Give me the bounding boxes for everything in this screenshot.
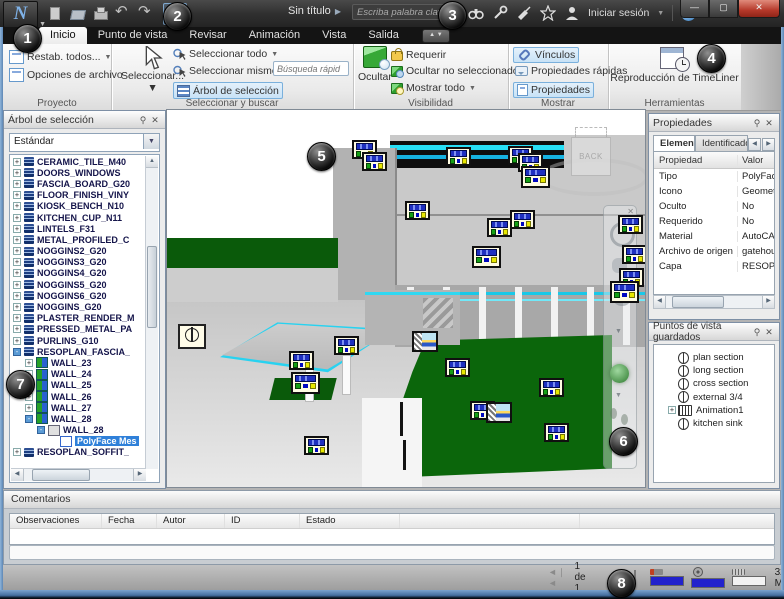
tree-item[interactable]: +KITCHEN_CUP_N11 — [11, 212, 146, 223]
layer-icon — [24, 303, 34, 312]
panel-label: Mostrar — [508, 98, 608, 109]
comments-column-fecha[interactable]: Fecha — [102, 514, 157, 528]
white-monument — [362, 398, 422, 487]
tree-item[interactable]: +LINTELS_F31 — [11, 223, 146, 234]
tab-revisar[interactable]: Revisar — [178, 27, 237, 44]
tree-item-label: RESOPLAN_FASCIA_ — [37, 347, 130, 357]
panel-title: Propiedades — [653, 117, 751, 129]
chain-link-icon — [518, 48, 531, 61]
file-options-button[interactable]: Opciones de archivo — [9, 68, 123, 82]
title-arrow-icon: ▶ — [335, 7, 341, 16]
scroll-thumb[interactable] — [147, 246, 157, 328]
tree-item-label: WALL_28 — [51, 414, 92, 424]
title-bar: N ▼ Sin título▶ — [0, 0, 784, 28]
viewpoint-label: long section — [693, 365, 744, 376]
hide-cube-icon — [363, 46, 387, 68]
scroll-up-icon[interactable]: ▲ — [146, 156, 158, 168]
tab-animación[interactable]: Animación — [238, 27, 311, 44]
callout-badge-5: 5 — [307, 142, 336, 171]
chevron-down-icon[interactable]: ▼ — [143, 134, 159, 149]
callout-badge-4: 4 — [697, 44, 726, 73]
hyperlink-icon[interactable] — [446, 147, 471, 166]
hyperlink-icon[interactable] — [521, 166, 550, 188]
tree-item-label: FASCIA_BOARD_G20 — [37, 179, 130, 189]
scroll-thumb[interactable] — [672, 296, 724, 308]
comments-empty-strip — [9, 545, 775, 560]
saved-viewpoints-panel: Puntos de vista guardados ⚲ ✕ +plan sect… — [648, 322, 780, 489]
web-icon — [732, 569, 745, 575]
tree-expander-icon[interactable]: + — [13, 236, 21, 244]
quick-find-input[interactable] — [273, 61, 349, 76]
layer-icon — [24, 235, 34, 244]
hyperlink-icon[interactable] — [304, 436, 329, 455]
hyperlink-icon[interactable] — [487, 218, 512, 237]
chevron-down-icon[interactable]: ▼ — [615, 392, 622, 399]
panel-proyecto: Restab. todos...▼ Opciones de archivo Pr… — [3, 44, 112, 110]
layer-icon — [24, 168, 34, 177]
layer-icon — [24, 213, 34, 222]
viewpoint-marker-icon[interactable] — [178, 324, 206, 349]
tree-item[interactable]: +FLOOR_FINISH_VINY — [11, 190, 146, 201]
tree-item[interactable]: +METAL_PROFILED_C — [11, 234, 146, 245]
tree-item-label: WALL_25 — [51, 380, 92, 390]
comments-column-autor[interactable]: Autor — [157, 514, 225, 528]
pin-icon[interactable]: ⚲ — [751, 117, 763, 129]
tree-item[interactable]: +RESOPLAN_SOFFIT_ — [11, 447, 146, 458]
pencil-icon — [650, 569, 663, 575]
tree-expander-icon[interactable]: - — [13, 348, 21, 356]
status-bar: ◄❘ ◄ 1 de 1 324 MB — [3, 565, 781, 590]
properties-page-icon — [517, 84, 528, 96]
tree-item[interactable]: +FASCIA_BOARD_G20 — [11, 178, 146, 189]
tree-expander-icon[interactable]: + — [25, 404, 33, 412]
tree-container: +CERAMIC_TILE_M40+DOORS_WINDOWS+FASCIA_B… — [9, 154, 160, 483]
callout-badge-2: 2 — [163, 2, 192, 31]
comments-column-id[interactable]: ID — [225, 514, 300, 528]
saved-viewpoints-header[interactable]: Puntos de vista guardados ⚲ ✕ — [649, 323, 779, 341]
layer-icon — [24, 325, 34, 334]
viewcube-lid — [575, 127, 607, 137]
layer-icon — [24, 448, 34, 457]
tree-item-label: PURLINS_G10 — [37, 336, 99, 346]
hide-unselected-icon — [391, 66, 403, 77]
ribbon-overflow-area — [741, 44, 781, 110]
scroll-right-icon[interactable]: ▶ — [133, 469, 146, 481]
viewport-3d[interactable]: BACK ✕ ▼ ▼ — [167, 110, 645, 487]
tree-expander-icon[interactable]: + — [13, 247, 21, 255]
redo-icon[interactable] — [138, 5, 155, 21]
tree-item-label: KITCHEN_CUP_N11 — [37, 213, 122, 223]
new-file-icon[interactable] — [46, 5, 63, 21]
show-all-button[interactable]: Mostrar todo▼ — [391, 82, 476, 94]
tree-expander-icon[interactable]: + — [13, 337, 21, 345]
terrace-grey — [167, 268, 338, 302]
hyperlink-icon[interactable] — [510, 210, 535, 229]
tree-expander-icon[interactable]: + — [13, 325, 21, 333]
undo-icon[interactable] — [115, 5, 132, 21]
close-button[interactable]: ✕ — [738, 0, 780, 18]
lock-icon — [391, 51, 403, 61]
property-row[interactable]: RequeridoNo — [654, 214, 774, 229]
tree-item-label: NOGGINS_G20 — [37, 302, 102, 312]
canopy-column — [342, 355, 351, 395]
tree-item[interactable]: +NOGGINS4_G20 — [11, 268, 146, 279]
tree-item[interactable]: +NOGGINS6_G20 — [11, 290, 146, 301]
tree-item-label: PolyFace Mes — [75, 436, 139, 446]
disk-progress-meter — [691, 567, 725, 588]
tree-expander-icon[interactable]: + — [13, 202, 21, 210]
layer-icon — [24, 179, 34, 188]
tree-mode-dropdown[interactable]: Estándar ▼ — [9, 133, 160, 152]
layer-icon — [24, 347, 34, 356]
tree-item[interactable]: +CERAMIC_TILE_M40 — [11, 156, 146, 167]
tree-item[interactable]: -WALL_28 — [11, 425, 146, 436]
tree-item-label: WALL_23 — [51, 358, 92, 368]
property-row[interactable]: CapaRESOPLA — [654, 259, 774, 274]
application-window: N ▼ Sin título▶ — [0, 0, 784, 599]
layer-icon — [24, 247, 34, 256]
layer-icon — [24, 314, 34, 323]
tree-item-label: WALL_28 — [63, 425, 104, 435]
divider — [672, 5, 673, 21]
quick-access-toolbar — [46, 4, 155, 22]
tree-item-label: PRESSED_METAL_PA — [37, 324, 132, 334]
search-binoculars-icon[interactable] — [468, 5, 484, 21]
selection-tree-list: +CERAMIC_TILE_M40+DOORS_WINDOWS+FASCIA_B… — [11, 156, 146, 469]
tree-expander-icon[interactable]: + — [668, 406, 676, 414]
viewpoint-icon — [678, 352, 689, 364]
viewpoint-item[interactable]: +cross section — [668, 377, 774, 390]
ribbon: Restab. todos...▼ Opciones de archivo Pr… — [3, 44, 781, 111]
comments-header[interactable]: Comentarios — [4, 491, 780, 509]
viewpoint-label: plan section — [693, 352, 744, 363]
wall-icon — [36, 357, 48, 368]
tree-item-label: FLOOR_FINISH_VINY — [37, 190, 129, 200]
viewpoint-icon — [678, 418, 689, 430]
app-logo: N — [14, 3, 28, 24]
hyperlink-icon[interactable] — [445, 358, 470, 377]
tree-expander-icon[interactable]: + — [13, 191, 21, 199]
tree-expander-icon[interactable]: + — [13, 269, 21, 277]
progress-bar — [691, 578, 725, 588]
window-controls: — ▢ ✕ — [680, 0, 780, 18]
tree-expander-icon[interactable]: + — [13, 292, 21, 300]
wall-icon — [36, 380, 48, 391]
ribbon-minimize-button[interactable]: ▲ ▼ — [422, 29, 450, 43]
walk-footprints-icon[interactable] — [610, 408, 617, 419]
layer-icon — [24, 291, 34, 300]
callout-badge-1: 1 — [13, 24, 42, 53]
hyperlink-icon[interactable] — [405, 201, 430, 220]
window-border — [0, 27, 3, 590]
properties-button[interactable]: Propiedades — [513, 82, 594, 98]
tree-expander-icon[interactable]: + — [13, 303, 21, 311]
tree-expander-icon[interactable]: + — [13, 214, 21, 222]
layer-icon — [24, 269, 34, 278]
tree-item-label: WALL_26 — [51, 392, 92, 402]
comments-table: ObservacionesFechaAutorIDEstado — [9, 513, 775, 545]
group-icon — [48, 425, 60, 436]
tree-item[interactable]: +NOGGINS3_G20 — [11, 257, 146, 268]
progress-bar — [732, 576, 766, 586]
layer-icon — [24, 157, 34, 166]
tree-item-label: RESOPLAN_SOFFIT_ — [37, 447, 129, 457]
panel-mostrar: Vínculos Propiedades rápidas Propiedades… — [508, 44, 609, 110]
viewpoint-icon — [678, 378, 689, 390]
callout-badge-7: 7 — [6, 370, 35, 399]
hyperlink-icon[interactable] — [472, 246, 501, 268]
scroll-right-icon[interactable]: ▶ — [762, 296, 774, 308]
comments-column-estado[interactable]: Estado — [300, 514, 400, 528]
viewpoint-icon — [678, 365, 689, 377]
selection-tree-button[interactable]: Árbol de selección — [173, 82, 283, 99]
tree-item[interactable]: +PURLINS_G10 — [11, 335, 146, 346]
print-icon[interactable] — [92, 5, 109, 21]
hyperlink-icon[interactable] — [362, 152, 387, 171]
callout-badge-3: 3 — [438, 1, 467, 30]
wall-icon — [36, 391, 48, 402]
tree-item[interactable]: +PolyFace Mes — [11, 436, 146, 447]
viewpoint-icon — [678, 391, 689, 403]
tree-item-label: NOGGINS6_G20 — [37, 291, 107, 301]
orbit-icon[interactable] — [610, 364, 629, 383]
tree-item[interactable]: +NOGGINS2_G20 — [11, 246, 146, 257]
viewpoint-item[interactable]: +Animation1 — [668, 404, 774, 417]
layer-icon — [24, 280, 34, 289]
panel-label: Herramientas — [608, 98, 741, 109]
viewpoint-item[interactable]: +long section — [668, 364, 774, 377]
tab-scroll-left-icon[interactable]: ◀ — [748, 138, 761, 151]
geom-icon — [60, 436, 72, 447]
favorites-star-icon[interactable] — [540, 5, 556, 21]
tree-item-label: NOGGINS5_G20 — [37, 280, 107, 290]
hide-big-button[interactable]: Ocultar — [358, 46, 392, 83]
hyperlink-icon[interactable] — [289, 351, 314, 370]
tree-expander-icon[interactable]: + — [13, 180, 21, 188]
disk-icon — [693, 567, 703, 577]
subscription-wrench-icon[interactable] — [492, 5, 508, 21]
viewcube[interactable]: BACK — [571, 137, 611, 176]
wall-icon — [36, 369, 48, 380]
panel-label: Seleccionar y buscar — [111, 98, 353, 109]
scroll-left-icon[interactable]: ◀ — [11, 469, 24, 481]
pencil-progress-meter — [650, 569, 684, 586]
tree-item-label: DOORS_WINDOWS — [37, 168, 121, 178]
speech-bubble-icon — [515, 66, 528, 76]
tree-item-label: METAL_PROFILED_C — [37, 235, 129, 245]
tree-item[interactable]: +DOORS_WINDOWS — [11, 167, 146, 178]
tree-expander-icon[interactable]: - — [37, 426, 45, 434]
communication-center-icon[interactable] — [516, 5, 532, 21]
properties-table-header: Propiedad Valor — [654, 152, 774, 169]
hide-unselected-button[interactable]: Ocultar no seleccionados — [391, 65, 524, 77]
sign-in-chevron-icon[interactable]: ▼ — [657, 10, 664, 17]
tree-item[interactable]: -WALL_28 — [11, 413, 146, 424]
viewpoint-item[interactable]: +kitchen sink — [668, 417, 774, 430]
tree-expander-icon[interactable]: + — [13, 225, 21, 233]
maximize-button[interactable]: ▢ — [709, 0, 738, 18]
properties-tabs: Elemento Identificador d ◀ ▶ — [653, 135, 775, 152]
tab-salida[interactable]: Salida — [357, 27, 410, 44]
tree-item[interactable]: +NOGGINS5_G20 — [11, 279, 146, 290]
select-same-button[interactable]: Seleccionar mismo▼ — [173, 65, 289, 77]
window-border — [0, 590, 784, 599]
viewpoint-item[interactable]: +plan section — [668, 351, 774, 364]
tree-item[interactable]: +WALL_27 — [11, 402, 146, 413]
selection-tree-header[interactable]: Árbol de selección ⚲ ✕ — [4, 111, 165, 129]
select-same-icon — [173, 65, 186, 77]
comments-column-observaciones[interactable]: Observaciones — [10, 514, 102, 528]
wall-icon — [36, 402, 48, 413]
document-title: Sin título▶ — [288, 5, 341, 17]
tab-punto-de-vista[interactable]: Punto de vista — [87, 27, 179, 44]
tree-horizontal-scrollbar[interactable]: ◀ ▶ — [11, 468, 146, 481]
callout-badge-6: 6 — [609, 427, 638, 456]
pin-icon[interactable]: ⚲ — [137, 114, 149, 126]
property-row[interactable]: MaterialAutoCAD C — [654, 229, 774, 244]
tree-item-label: NOGGINS4_G20 — [37, 268, 107, 278]
comments-panel: Comentarios ObservacionesFechaAutorIDEst… — [3, 490, 781, 565]
wall-icon — [36, 413, 48, 424]
show-all-icon — [391, 83, 403, 94]
selection-tree-icon — [177, 85, 190, 97]
minimize-button[interactable]: — — [680, 0, 709, 18]
green-strip-left — [167, 238, 338, 268]
tree-item-label: LINTELS_F31 — [37, 224, 95, 234]
hyperlink-icon[interactable] — [291, 372, 320, 394]
file-options-icon — [9, 68, 24, 82]
web-progress-meter — [732, 569, 766, 586]
links-button[interactable]: Vínculos — [513, 47, 579, 63]
properties-header[interactable]: Propiedades ⚲ ✕ — [649, 114, 779, 132]
pin-icon[interactable]: ⚲ — [751, 326, 763, 338]
layer-icon — [24, 191, 34, 200]
hyperlink-icon[interactable] — [539, 378, 564, 397]
tree-item[interactable]: +PRESSED_METAL_PA — [11, 324, 146, 335]
tab-elemento[interactable]: Elemento — [653, 135, 695, 151]
tree-item-label: NOGGINS2_G20 — [37, 246, 107, 256]
viewpoint-label: cross section — [693, 378, 748, 389]
tree-item[interactable]: -RESOPLAN_FASCIA_ — [11, 346, 146, 357]
cursor-icon — [143, 46, 163, 70]
select-all-icon — [173, 48, 186, 60]
property-row[interactable]: Archivo de origengatehouse — [654, 244, 774, 259]
tree-expander-icon[interactable]: + — [13, 281, 21, 289]
scroll-left-icon[interactable]: ◀ — [654, 296, 666, 308]
infocenter-toolbar: Iniciar sesión ▼ ? ▼ — [468, 3, 711, 23]
tree-item-label: NOGGINS3_G20 — [37, 257, 107, 267]
tree-expander-icon[interactable]: + — [13, 258, 21, 266]
tree-item-label: KIOSK_BENCH_N10 — [37, 201, 124, 211]
sheet-prev-icons[interactable]: ◄❘ ◄ — [548, 567, 566, 588]
require-button[interactable]: Requerir — [391, 48, 446, 61]
panel-label: Proyecto — [3, 98, 111, 109]
property-row[interactable]: TipoPolyFace M — [654, 169, 774, 184]
ribbon-tabs: ▲ ▼ InicioPunto de vistaRevisarAnimación… — [3, 27, 781, 44]
panel-title: Árbol de selección — [8, 114, 137, 126]
chevron-down-icon[interactable]: ▼ — [615, 328, 622, 335]
property-row[interactable]: OcultoNo — [654, 199, 774, 214]
close-icon[interactable]: ✕ — [149, 114, 161, 126]
viewpoint-label: kitchen sink — [693, 418, 743, 429]
callout-badge-8: 8 — [607, 569, 636, 598]
tab-inicio[interactable]: Inicio — [39, 27, 87, 44]
hyperlink-icon[interactable] — [544, 423, 569, 442]
comments-column-extra[interactable] — [400, 514, 580, 528]
tree-expander-icon[interactable]: + — [13, 314, 21, 322]
viewpoint-item[interactable]: +external 3/4 — [668, 391, 774, 404]
tree-item-label: PLASTER_RENDER_M — [37, 313, 135, 323]
tree-vertical-scrollbar[interactable]: ▲ — [145, 156, 158, 469]
tab-identificador[interactable]: Identificador d — [695, 135, 748, 151]
viewpoint-label: Animation1 — [696, 405, 744, 416]
tree-expander-icon[interactable]: + — [25, 359, 33, 367]
tree-expander-icon[interactable]: + — [13, 169, 21, 177]
tree-item-label: WALL_27 — [51, 403, 92, 413]
close-icon[interactable]: ✕ — [763, 326, 775, 338]
select-all-button[interactable]: Seleccionar todo▼ — [173, 48, 278, 60]
properties-horizontal-scrollbar[interactable]: ◀ ▶ — [653, 295, 775, 309]
walk-footprints-icon[interactable] — [621, 414, 628, 425]
comments-table-header: ObservacionesFechaAutorIDEstado — [10, 514, 774, 529]
tree-item[interactable]: +WALL_23 — [11, 357, 146, 368]
tree-expander-icon[interactable]: - — [25, 415, 33, 423]
layer-icon — [24, 202, 34, 211]
tree-item[interactable]: +KIOSK_BENCH_N10 — [11, 201, 146, 212]
image-link-icon[interactable] — [486, 402, 512, 423]
tree-expander-icon[interactable]: + — [13, 448, 21, 456]
image-link-icon[interactable] — [412, 331, 438, 352]
panel-seleccionar-buscar: Seleccionar... ▼ Seleccionar todo▼ Selec… — [111, 44, 354, 110]
close-icon[interactable]: ✕ — [763, 117, 775, 129]
hyperlink-icon[interactable] — [618, 215, 643, 234]
properties-panel: Propiedades ⚲ ✕ Elemento Identificador d… — [648, 113, 780, 320]
scroll-thumb[interactable] — [32, 469, 90, 481]
panel-title: Puntos de vista guardados — [653, 321, 751, 343]
selection-tree-panel: Árbol de selección ⚲ ✕ Estándar ▼ +CERAM… — [3, 110, 166, 489]
layer-icon — [24, 224, 34, 233]
panel-label: Visibilidad — [353, 98, 508, 109]
panel-visibilidad: Ocultar Requerir Ocultar no seleccionado… — [353, 44, 509, 110]
properties-table: Propiedad Valor TipoPolyFace MIconoGeome… — [653, 151, 775, 295]
sign-in-button[interactable]: Iniciar sesión — [588, 7, 649, 19]
tree-expander-icon[interactable]: + — [13, 158, 21, 166]
tree-item-label: WALL_24 — [51, 369, 92, 379]
user-icon — [564, 5, 580, 21]
tree-item-label: CERAMIC_TILE_M40 — [37, 157, 126, 167]
application-menu-button[interactable]: N ▼ — [3, 1, 38, 28]
property-row[interactable]: IconoGeometría — [654, 184, 774, 199]
progress-bar — [650, 576, 684, 586]
viewpoint-label: external 3/4 — [693, 392, 743, 403]
tree-item[interactable]: +NOGGINS_G20 — [11, 301, 146, 312]
hyperlink-icon[interactable] — [610, 281, 639, 303]
timeliner-icon — [660, 46, 690, 72]
hyperlink-icon[interactable] — [334, 336, 359, 355]
layer-icon — [24, 258, 34, 267]
open-file-icon[interactable] — [69, 5, 86, 21]
tab-scroll-right-icon[interactable]: ▶ — [762, 138, 775, 151]
layer-icon — [24, 336, 34, 345]
hyperlink-icon[interactable] — [622, 245, 645, 264]
saved-viewpoints-list: +plan section+long section+cross section… — [653, 344, 775, 483]
animation-icon — [678, 405, 692, 416]
tree-item[interactable]: +PLASTER_RENDER_M — [11, 313, 146, 324]
tab-vista[interactable]: Vista — [311, 27, 357, 44]
